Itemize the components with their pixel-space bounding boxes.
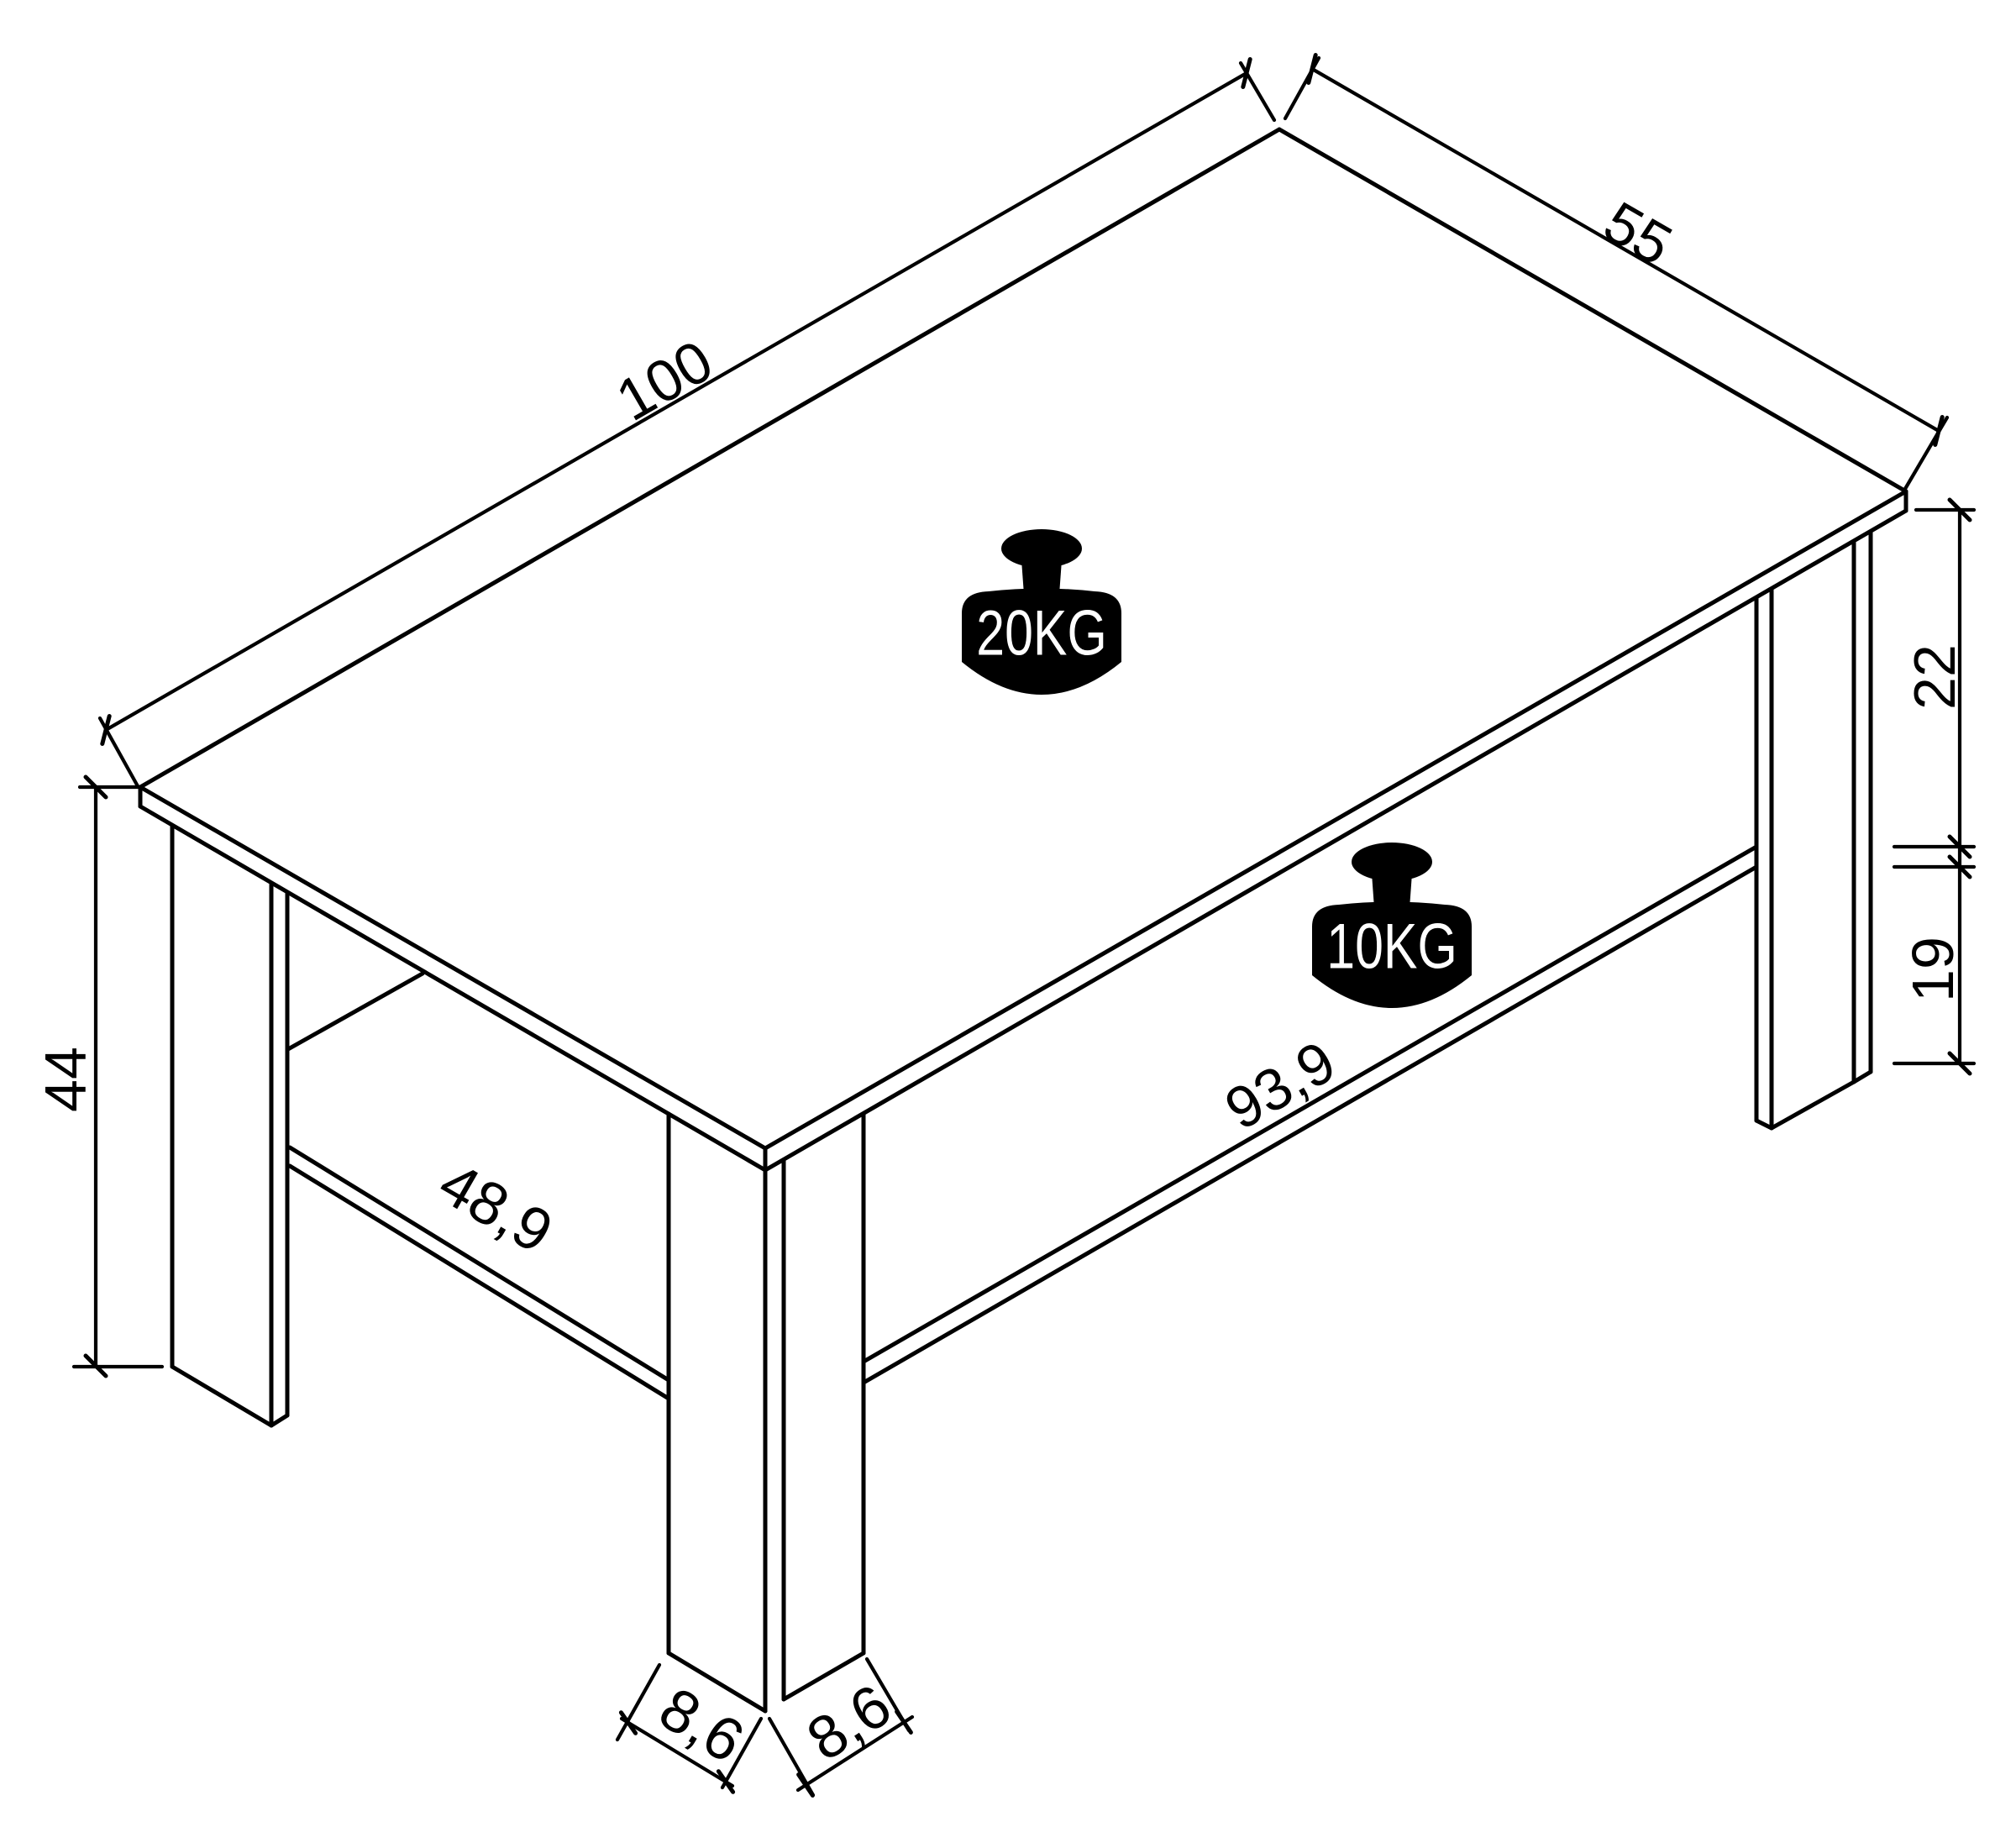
svg-text:19: 19 xyxy=(1900,937,1966,1002)
svg-text:44: 44 xyxy=(33,1047,98,1112)
svg-text:22: 22 xyxy=(1902,644,1967,710)
svg-text:20KG: 20KG xyxy=(976,597,1106,669)
svg-text:10KG: 10KG xyxy=(1326,911,1457,982)
